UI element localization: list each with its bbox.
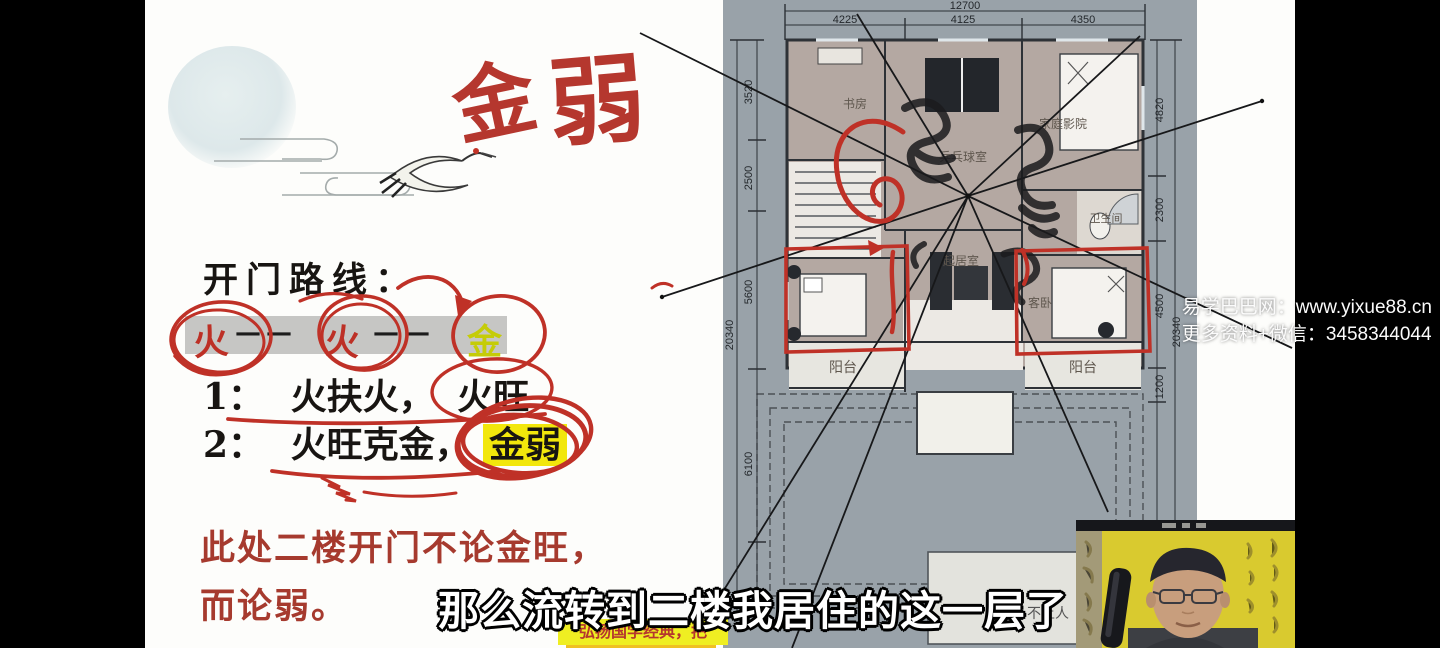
watermark: 易学巴巴网：www.yixue88.cn 更多资料+微信：3458344044 (1182, 294, 1432, 348)
room-label-guest: 客卧 (1028, 295, 1052, 310)
notes-red-marks (169, 277, 672, 501)
dim-right-0: 4820 (1154, 98, 1166, 122)
room-label-living: 起居室 (943, 253, 979, 268)
room-label-balcony-left: 阳台 (829, 359, 857, 375)
dim-left-2: 5600 (743, 280, 755, 304)
microphone-icon (1100, 567, 1133, 648)
presenter-webcam (1076, 520, 1295, 648)
left-letterbox-bar (0, 0, 145, 648)
presenter-graphic (1076, 520, 1295, 648)
dim-left-0: 3520 (743, 80, 755, 104)
presenter-person (1128, 548, 1258, 648)
video-frame: 金 弱 开门路线： 火 — — 火 — — 金 1： 火扶火， 火旺 2： 火旺… (0, 0, 1440, 648)
video-subtitle: 那么流转到二楼我居住的这一层了 (438, 577, 998, 637)
watermark-line-2: 更多资料+微信：3458344044 (1182, 321, 1432, 348)
dim-right-1: 2300 (1154, 198, 1166, 222)
dim-top-2: 4350 (1071, 14, 1095, 26)
dim-left-3: 6100 (743, 452, 755, 476)
dim-top-total: 12700 (950, 0, 981, 12)
room-label-balcony-right: 阳台 (1069, 359, 1097, 375)
dim-top-0: 4225 (833, 14, 857, 26)
dim-left-total: 20340 (724, 320, 736, 351)
room-label-study: 书房 (843, 96, 867, 111)
dim-left-1: 2500 (743, 166, 755, 190)
dim-right-3: 1200 (1154, 375, 1166, 399)
dim-top-1: 4125 (951, 14, 975, 26)
dim-right-2: 4500 (1154, 294, 1166, 318)
room-label-bath: 卫生间 (1090, 211, 1123, 225)
watermark-line-1: 易学巴巴网：www.yixue88.cn (1182, 294, 1432, 321)
